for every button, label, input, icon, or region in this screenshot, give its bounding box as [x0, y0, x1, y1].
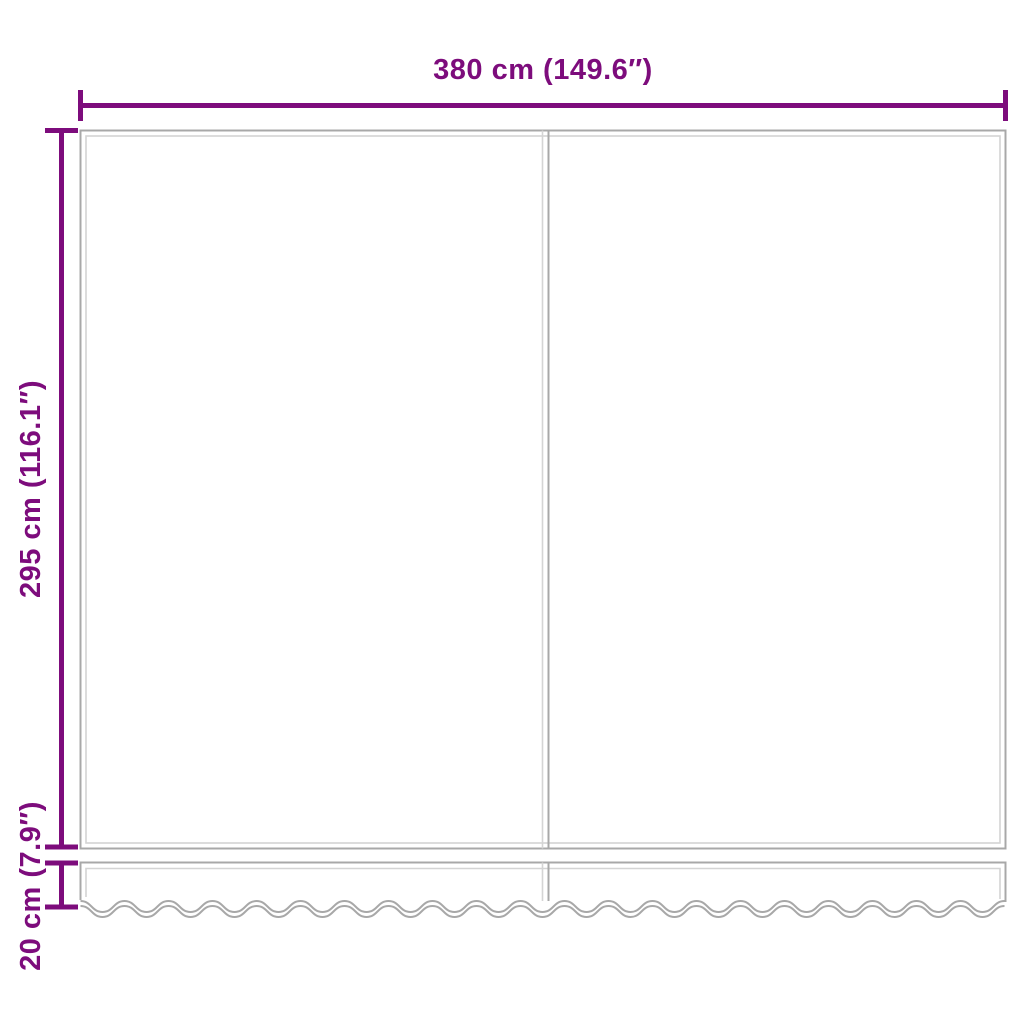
valance-dimension-label: 20 cm (7.9″): [15, 801, 47, 971]
scalloped-edge-outer: [81, 901, 1005, 912]
dimension-diagram: 380 cm (149.6″) 295 cm (116.1″) 20 cm (7…: [0, 0, 1024, 1024]
width-dimension-label: 380 cm (149.6″): [433, 54, 653, 86]
diagram-canvas: 380 cm (149.6″) 295 cm (116.1″) 20 cm (7…: [0, 0, 1024, 1024]
height-dimension-label: 295 cm (116.1″): [15, 380, 47, 598]
